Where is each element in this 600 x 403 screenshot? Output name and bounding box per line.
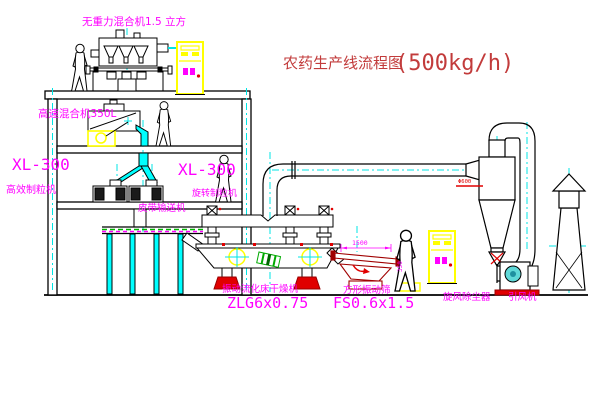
y-splitter <box>114 153 157 182</box>
gravity-mixer-label: 无重力混合机1.5 立方 <box>82 15 186 28</box>
high-speed-mixer <box>88 100 148 146</box>
cyclone-diameter-text: Φ600 <box>458 179 471 185</box>
vibrating-screen <box>331 251 400 289</box>
conveyor-legs <box>107 234 183 294</box>
exhaust-duct <box>263 160 480 216</box>
granulator-left-name: 高效制粒机 <box>6 183 56 196</box>
belt-conveyor-label: 皮带输送机 <box>138 202 186 214</box>
cad-canvas: 农药生产线流程图 (500kg/h) 无重力混合机1.5 立方 高速混合机350… <box>0 0 600 403</box>
induced-draft-fan <box>495 262 539 295</box>
dryer-hood <box>202 215 333 227</box>
cad-flow-diagram: 农药生产线流程图 (500kg/h) 无重力混合机1.5 立方 高速混合机350… <box>0 0 600 403</box>
granulator-left-model: XL-300 <box>12 155 70 174</box>
rotary-granulators <box>93 180 163 202</box>
high-speed-mixer-label: 高速混合机350L <box>38 107 117 120</box>
diagram-title: 农药生产线流程图 <box>283 54 403 72</box>
belt-conveyor <box>102 227 204 294</box>
control-cabinet-roof <box>175 42 205 95</box>
dryer-rim <box>196 244 340 248</box>
screen-model-label: FS0.6x1.5 <box>333 294 414 312</box>
gravity-free-mixer <box>86 30 177 91</box>
worker-second-floor <box>156 102 171 146</box>
cyclone-label: 旋风除尘器 <box>443 291 491 303</box>
granulator-mid-model: XL-300 <box>178 160 236 179</box>
dimension-1500-text: 1500 <box>352 239 368 247</box>
fan-label: 引风机 <box>508 291 537 303</box>
worker-roof <box>72 44 88 91</box>
dryer-hangers <box>205 227 331 244</box>
dryer-model-label: ZLG6x0.75 <box>227 294 308 312</box>
granulator-mid-name: 旋转制粒机 <box>192 187 237 199</box>
diagram-title-capacity: (500kg/h) <box>395 51 514 76</box>
dimension-350-text: 350 <box>397 261 404 272</box>
control-cabinet-ground <box>427 231 457 284</box>
second-floor-slab <box>57 146 242 153</box>
exhaust-chimney <box>553 174 585 290</box>
cyclone-dust-collector <box>456 140 515 266</box>
roof-slab <box>45 91 250 99</box>
